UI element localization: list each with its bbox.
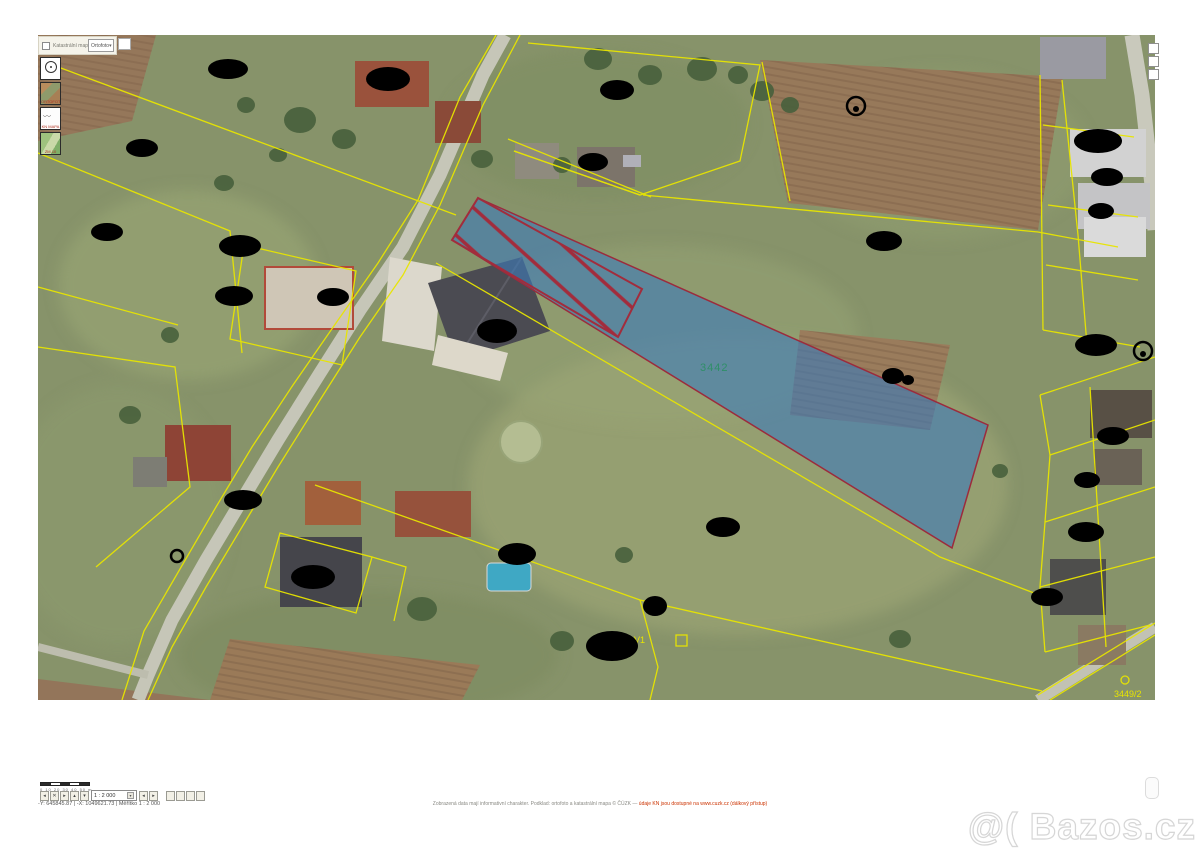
coordinate-status-line: -Y: 645845.87 | -X: 1049621.73 | Měřítko…	[38, 801, 160, 807]
map-corner-button-3[interactable]	[1148, 69, 1159, 80]
scrollbar-thumb[interactable]	[1145, 777, 1159, 799]
label-3449-2: 3449/2	[1114, 689, 1142, 699]
chevron-down-icon: ▾	[127, 792, 134, 799]
disclaimer-link[interactable]: údaje KN jsou dostupné na www.cuzk.cz (d…	[639, 801, 767, 807]
parcel-number-label: 3442	[700, 362, 728, 374]
aerial-map-canvas[interactable]: 3442 V1 3449/2	[38, 35, 1155, 700]
disclaimer-text: Zobrazená data mají informativní charakt…	[433, 801, 639, 807]
pan-down-button[interactable]: ▾	[80, 791, 89, 801]
bazos-watermark: @( Bazos.cz	[968, 806, 1196, 848]
chevron-down-icon: ▾	[109, 43, 112, 49]
history-forward-button[interactable]: ▸	[149, 791, 158, 801]
layer-checkbox-label: Katastrální mapa	[53, 43, 91, 49]
map-viewport[interactable]: 3442 V1 3449/2	[38, 35, 1155, 700]
tool-button-3[interactable]	[186, 791, 195, 801]
map-footer-controls: ◂ ✕ ▸ ▴ ▾ 1 : 2 000 ▾ ◂ ▸	[40, 790, 205, 801]
layer-select-dropdown[interactable]: Ortofoto ▾	[88, 39, 114, 52]
pan-left-button[interactable]: ◂	[40, 791, 49, 801]
center-button[interactable]: ✕	[50, 791, 59, 801]
scale-select-value: 1 : 2 000	[94, 793, 115, 799]
layer-select-value: Ortofoto	[91, 43, 109, 49]
layer-checkbox[interactable]	[42, 42, 50, 50]
layer-button-zm10[interactable]: ZM 10	[40, 132, 61, 155]
tool-button-1[interactable]	[166, 791, 175, 801]
map-small-labels: V1 3449/2	[634, 635, 1142, 699]
pan-up-button[interactable]: ▴	[70, 791, 79, 801]
tool-button-4[interactable]	[196, 791, 205, 801]
tool-button-2[interactable]	[176, 791, 185, 801]
layer-buttons-panel: ORTOFOTO 〰 KN MAPA ZM 10	[40, 57, 62, 157]
scale-select-dropdown[interactable]: 1 : 2 000 ▾	[91, 790, 137, 801]
map-corner-button-1[interactable]	[1148, 43, 1159, 54]
map-corner-button-2[interactable]	[1148, 56, 1159, 67]
layer-button-kn-mapa[interactable]: 〰 KN MAPA	[40, 107, 61, 130]
scale-bar-segments	[40, 782, 90, 786]
history-back-button[interactable]: ◂	[139, 791, 148, 801]
copyright-disclaimer: Zobrazená data mají informativní charakt…	[433, 801, 767, 807]
map-sketch-icon: 〰	[43, 111, 51, 122]
pan-right-button[interactable]: ▸	[60, 791, 69, 801]
compass-icon	[45, 61, 57, 73]
toolbar-extra-button[interactable]	[118, 38, 131, 50]
layer-button-ortofoto[interactable]: ORTOFOTO	[40, 82, 61, 105]
locate-tool-button[interactable]	[40, 57, 61, 80]
